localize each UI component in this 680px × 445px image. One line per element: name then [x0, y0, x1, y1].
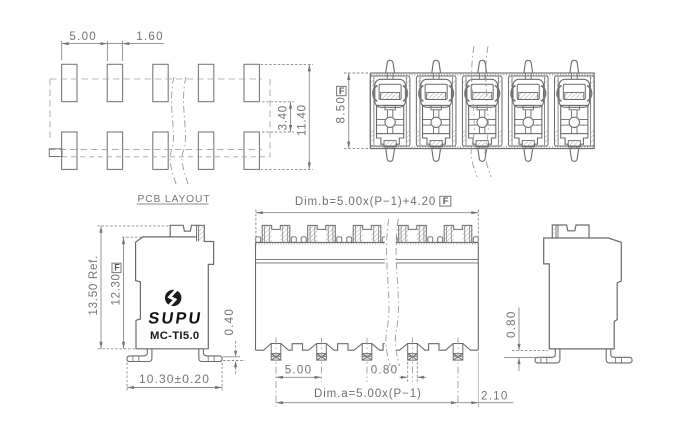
svg-text:F: F [443, 196, 449, 206]
svg-text:PCB LAYOUT: PCB LAYOUT [138, 194, 211, 205]
svg-text:5.00: 5.00 [69, 30, 97, 43]
svg-text:Dim.b=5.00x(P−1)+4.20: Dim.b=5.00x(P−1)+4.20 [295, 196, 436, 208]
svg-text:MC-TI5.0: MC-TI5.0 [150, 330, 199, 342]
svg-text:0.40: 0.40 [223, 308, 236, 336]
svg-text:F: F [339, 86, 345, 96]
svg-text:11.40: 11.40 [296, 104, 309, 136]
svg-text:13.50 Ref.: 13.50 Ref. [87, 255, 100, 316]
svg-text:2.10: 2.10 [481, 390, 509, 403]
svg-text:12.30: 12.30 [109, 273, 122, 305]
svg-text:8.50: 8.50 [335, 96, 348, 124]
svg-text:0.80: 0.80 [371, 364, 399, 377]
svg-text:5.00: 5.00 [285, 364, 313, 377]
svg-text:Dim.a=5.00x(P−1): Dim.a=5.00x(P−1) [314, 388, 422, 400]
svg-text:SUPU: SUPU [147, 310, 204, 328]
svg-text:10.30±0.20: 10.30±0.20 [139, 372, 210, 386]
svg-text:F: F [114, 263, 120, 273]
svg-text:3.40: 3.40 [276, 105, 289, 130]
svg-text:1.60: 1.60 [136, 30, 164, 43]
svg-text:0.80: 0.80 [505, 310, 518, 338]
